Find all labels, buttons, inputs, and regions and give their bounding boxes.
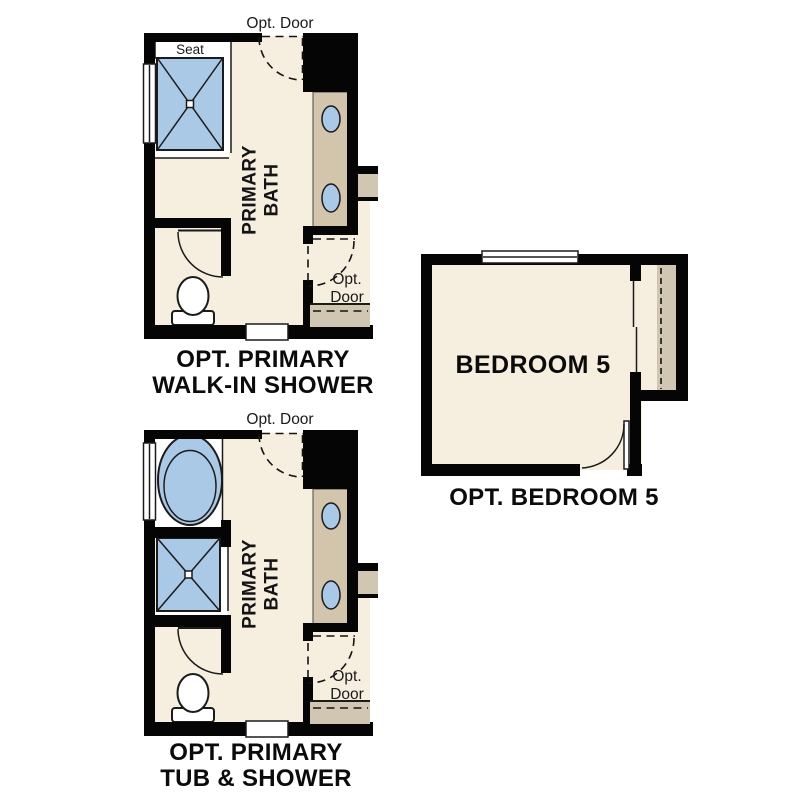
floorplan-drawing	[0, 0, 810, 810]
room-label-line: BATH	[261, 539, 283, 629]
wall	[630, 372, 641, 476]
opt-door-label-line: Door	[330, 686, 364, 704]
wall	[221, 615, 231, 673]
caption-bedroom5: OPT. BEDROOM 5	[449, 485, 659, 511]
sink	[322, 106, 340, 132]
seat-label: Seat	[176, 42, 204, 57]
wall	[347, 489, 358, 628]
opt-door-label: Opt. Door	[246, 15, 313, 33]
opt-door-label: Opt. Door	[330, 668, 364, 703]
wall	[421, 464, 580, 476]
opt-door-label-line: Opt.	[330, 271, 364, 289]
closet-floor-strip	[310, 304, 370, 327]
exterior-gap	[358, 433, 379, 564]
wall	[221, 520, 231, 547]
caption-tub-shower: OPT. PRIMARY TUB & SHOWER	[160, 740, 352, 791]
wall-block	[303, 430, 358, 489]
closet-floor-strip	[310, 701, 370, 724]
closet-carpet	[657, 265, 677, 391]
closet-floor	[641, 265, 658, 391]
wall	[358, 563, 378, 571]
opt-door-label-line: Opt.	[330, 668, 364, 686]
wall	[635, 390, 688, 401]
sink	[322, 503, 340, 529]
linen-nook	[358, 571, 378, 594]
doorway-threshold	[246, 721, 288, 737]
doorway-threshold	[246, 324, 288, 340]
room-label-bedroom5: BEDROOM 5	[455, 351, 610, 380]
wall	[221, 218, 231, 276]
room-label-line: PRIMARY	[240, 539, 262, 629]
wall	[303, 623, 313, 641]
caption-line: WALK-IN SHOWER	[152, 373, 374, 399]
opt-door-label-line: Door	[330, 289, 364, 307]
toilet-bowl	[178, 277, 209, 315]
opt-door-label: Opt. Door	[246, 411, 313, 429]
shower-curb	[155, 150, 229, 158]
wall	[144, 430, 262, 439]
linen-nook	[358, 174, 378, 197]
wall	[153, 527, 231, 538]
wall	[303, 226, 313, 244]
caption-line: TUB & SHOWER	[160, 766, 352, 792]
room-label-primary-bath: PRIMARY BATH	[240, 145, 283, 235]
room-label-line: PRIMARY	[240, 145, 262, 235]
caption-line: OPT. PRIMARY	[160, 740, 352, 766]
wall	[358, 594, 378, 598]
wall-block	[303, 33, 358, 92]
sink	[322, 184, 340, 212]
floorplan-sheet: Opt. Door Seat PRIMARY BATH Opt. Door OP…	[0, 0, 810, 810]
wall	[358, 197, 378, 201]
wall	[421, 254, 432, 476]
exterior-gap	[358, 36, 379, 167]
wall	[150, 218, 226, 228]
wall	[630, 265, 641, 281]
room-label-primary-bath: PRIMARY BATH	[240, 539, 283, 629]
toilet-bowl	[178, 674, 209, 712]
caption-line: OPT. PRIMARY	[152, 347, 374, 373]
room-label-line: BATH	[261, 145, 283, 235]
wall	[150, 615, 226, 627]
shower-drain	[185, 571, 192, 578]
shower-glass-strip	[220, 538, 228, 611]
door-leaf	[624, 421, 629, 469]
tub	[158, 435, 222, 525]
sink	[322, 581, 340, 609]
caption-walk-in-shower: OPT. PRIMARY WALK-IN SHOWER	[152, 347, 374, 398]
wall	[358, 166, 378, 174]
shower-glass-strip	[223, 39, 231, 153]
opt-door-label: Opt. Door	[330, 271, 364, 306]
shower-drain	[187, 101, 194, 108]
wall	[676, 254, 688, 401]
wall	[144, 33, 262, 42]
wall	[347, 92, 358, 231]
